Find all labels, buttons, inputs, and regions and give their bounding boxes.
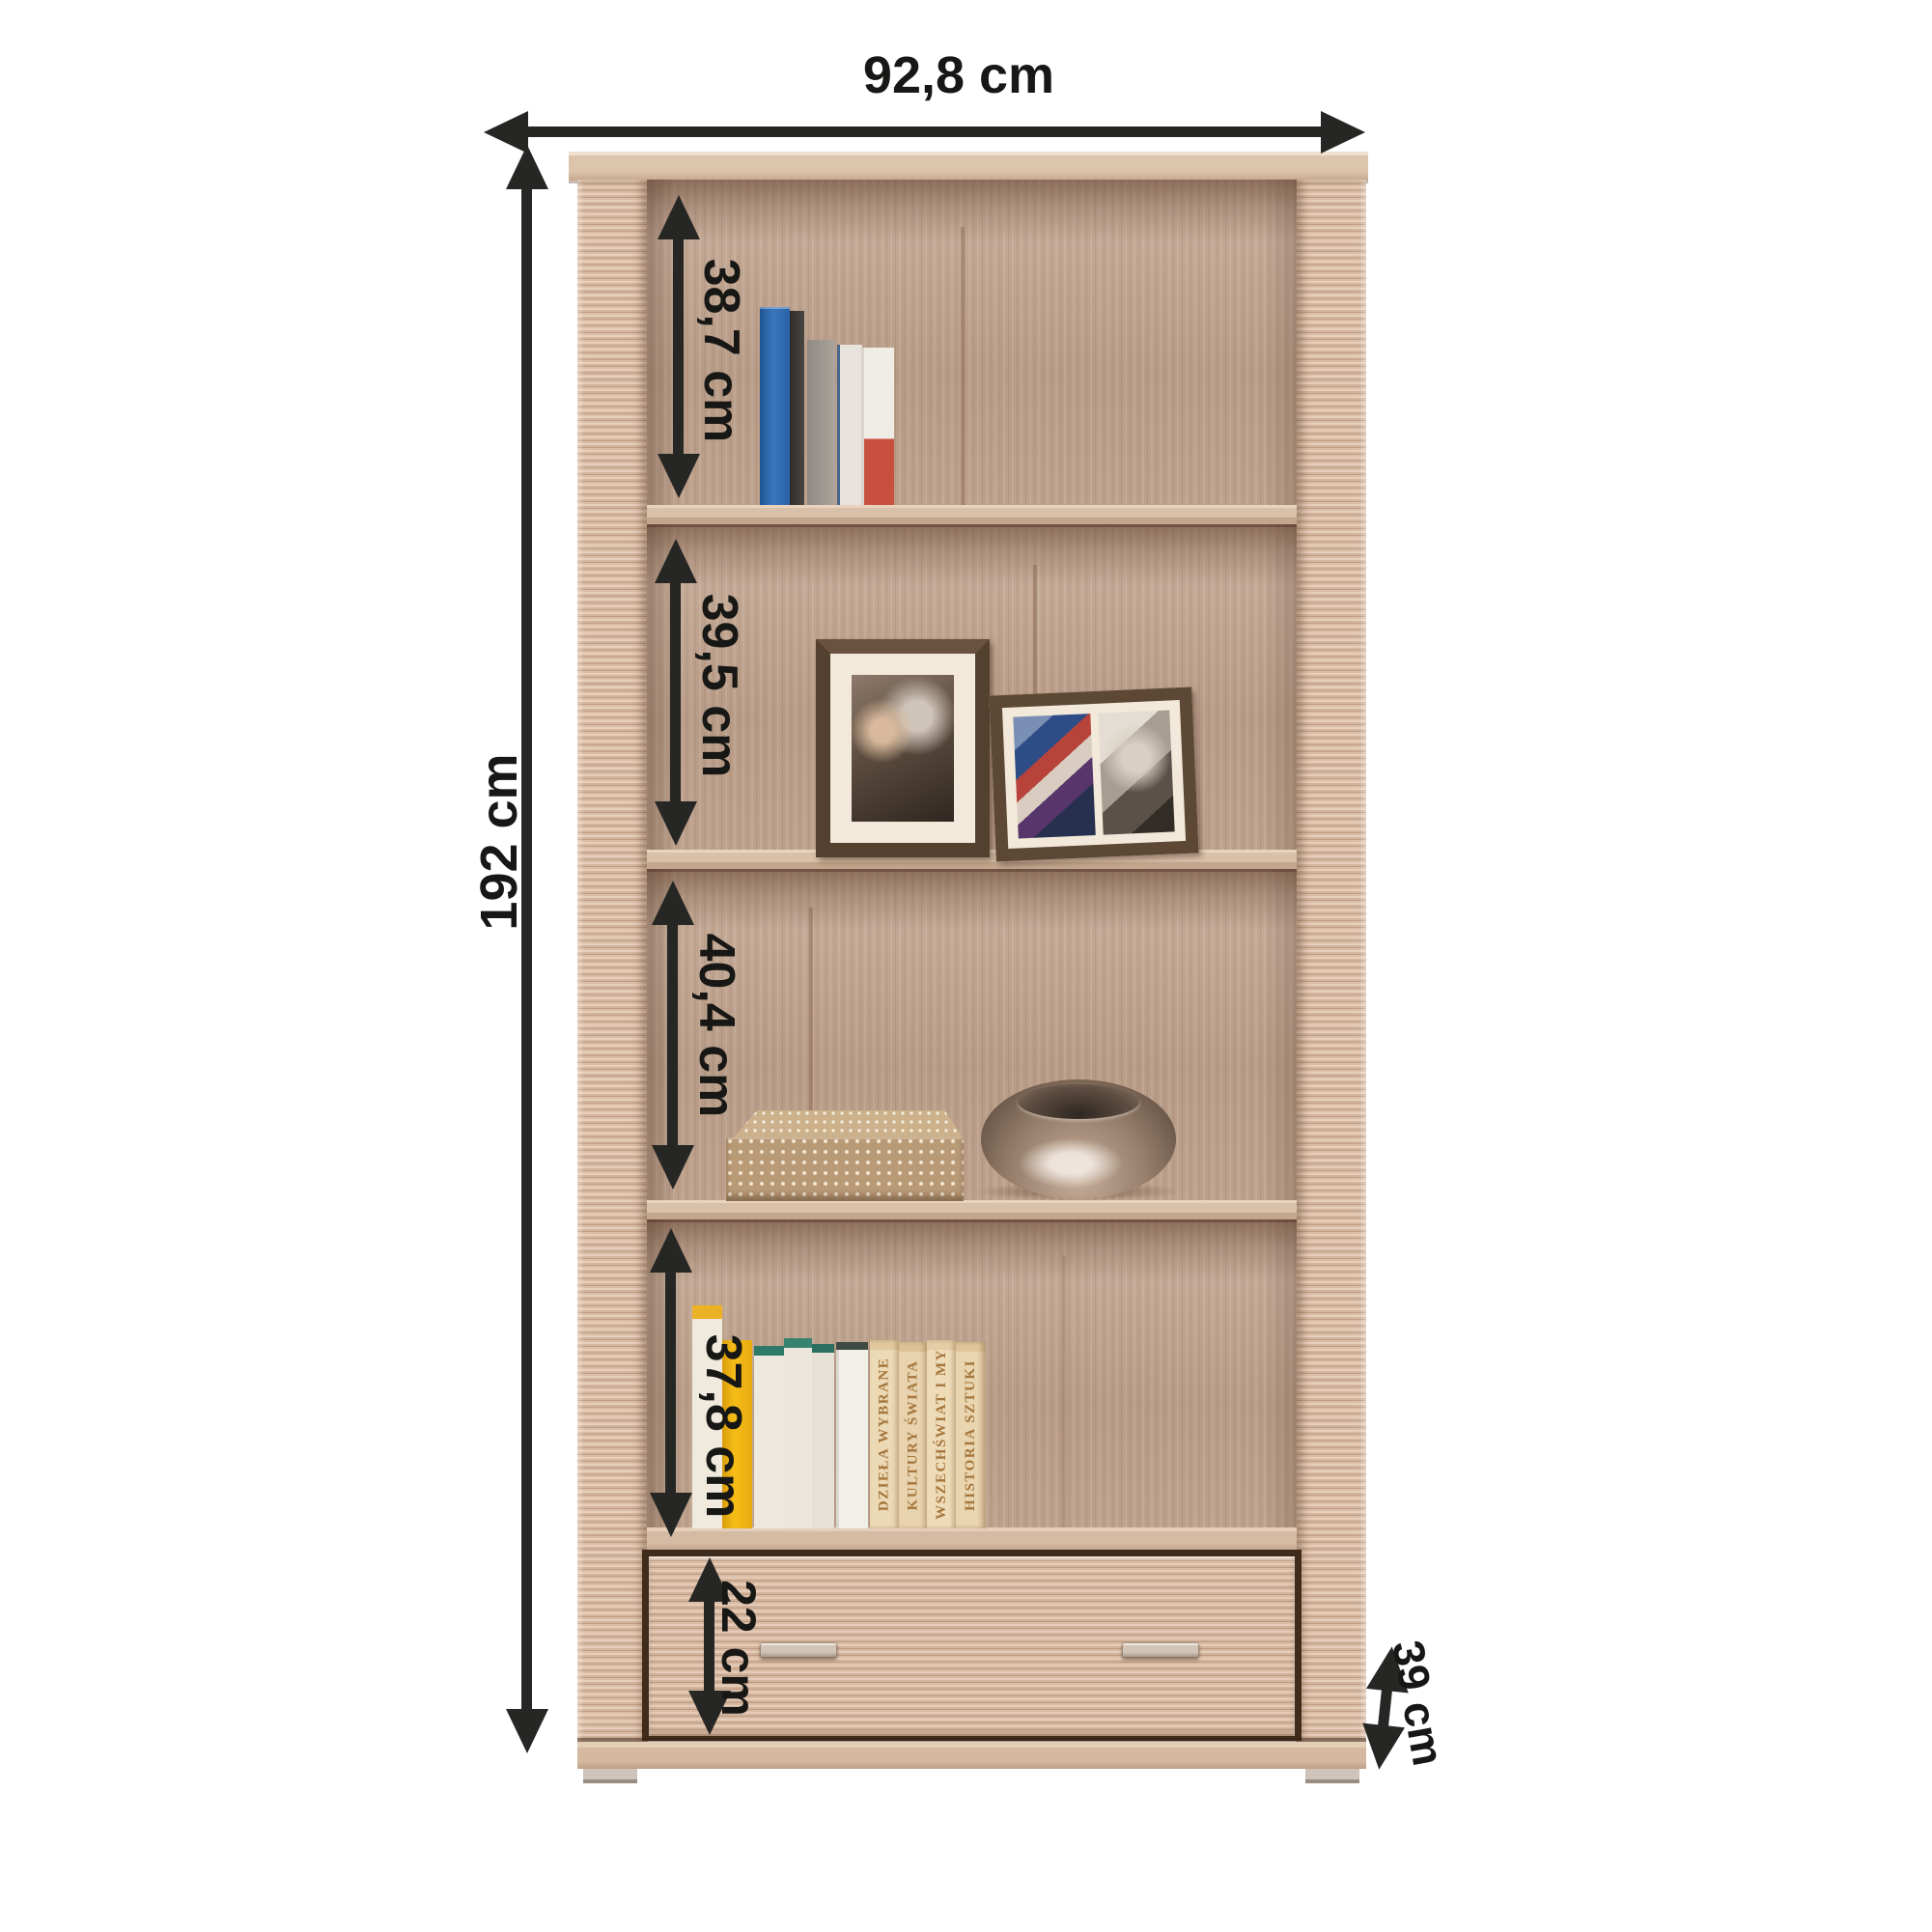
book-spine-title: HISTORIA SZTUKI — [963, 1359, 979, 1511]
cabinet-foot-left — [583, 1769, 637, 1783]
drawer-handle-left — [760, 1642, 837, 1658]
tall-white-book — [836, 1342, 868, 1528]
cabinet-right-side-panel — [1296, 180, 1366, 1742]
blue-book — [760, 307, 790, 505]
compartment-3-label: 40,4 cm — [688, 871, 742, 1180]
cabinet-base-strip — [577, 1742, 1366, 1769]
cabinet-top-board — [569, 152, 1368, 181]
cabinet-foot-right — [1305, 1769, 1359, 1783]
width-dimension-label: 92,8 cm — [717, 48, 1200, 103]
woven-box-top — [726, 1110, 964, 1138]
frame-photo-bw — [1098, 711, 1174, 835]
compartment-2-arrow — [670, 579, 681, 805]
woven-box — [726, 1137, 964, 1201]
metal-bowl — [981, 1079, 1176, 1199]
frame-photo-portrait — [852, 675, 954, 822]
frame-photo-collage — [1013, 714, 1095, 838]
width-dimension-arrow — [526, 126, 1323, 137]
black-book — [790, 311, 804, 505]
compartment-4-arrow — [665, 1269, 676, 1497]
compartment-2-label: 39,5 cm — [691, 531, 745, 840]
shelf-board-3 — [647, 1200, 1297, 1219]
back-panel-seam — [1062, 1255, 1066, 1527]
book-spine-title: KULTURY ŚWIATA — [905, 1360, 921, 1511]
compartment-1-arrow — [673, 236, 684, 458]
book-spine: HISTORIA SZTUKI — [956, 1342, 986, 1528]
book-spine: DZIEŁA WYBRANE — [870, 1340, 899, 1528]
white-red-book — [861, 348, 894, 505]
picture-frame-double — [989, 687, 1198, 862]
book-spine-title: WSZECHŚWIAT I MY — [934, 1349, 950, 1520]
grey-book — [807, 340, 835, 505]
white-green-book — [812, 1344, 834, 1528]
white-green-book — [754, 1346, 784, 1528]
metal-bowl-opening — [1018, 1084, 1139, 1119]
book-spine: KULTURY ŚWIATA — [899, 1342, 927, 1528]
shelf-board-1 — [647, 505, 1297, 524]
drawer-dimension-label: 22 cm — [714, 1532, 764, 1764]
white-green-book — [784, 1338, 812, 1528]
compartment-3-arrow — [667, 921, 678, 1149]
book-spine: WSZECHŚWIAT I MY — [927, 1340, 956, 1528]
back-panel-seam — [961, 227, 965, 505]
white-book — [837, 345, 862, 505]
bookcase-dimension-diagram: DZIEŁA WYBRANE KULTURY ŚWIATA WSZECHŚWIA… — [0, 0, 1932, 1932]
cabinet-left-side-panel — [577, 180, 648, 1742]
picture-frame-large — [816, 639, 990, 857]
drawer-handle-right — [1122, 1642, 1199, 1658]
compartment-1-label: 38,7 cm — [693, 196, 747, 505]
book-spine-title: DZIEŁA WYBRANE — [877, 1358, 893, 1512]
height-dimension-label: 192 cm — [472, 687, 530, 996]
